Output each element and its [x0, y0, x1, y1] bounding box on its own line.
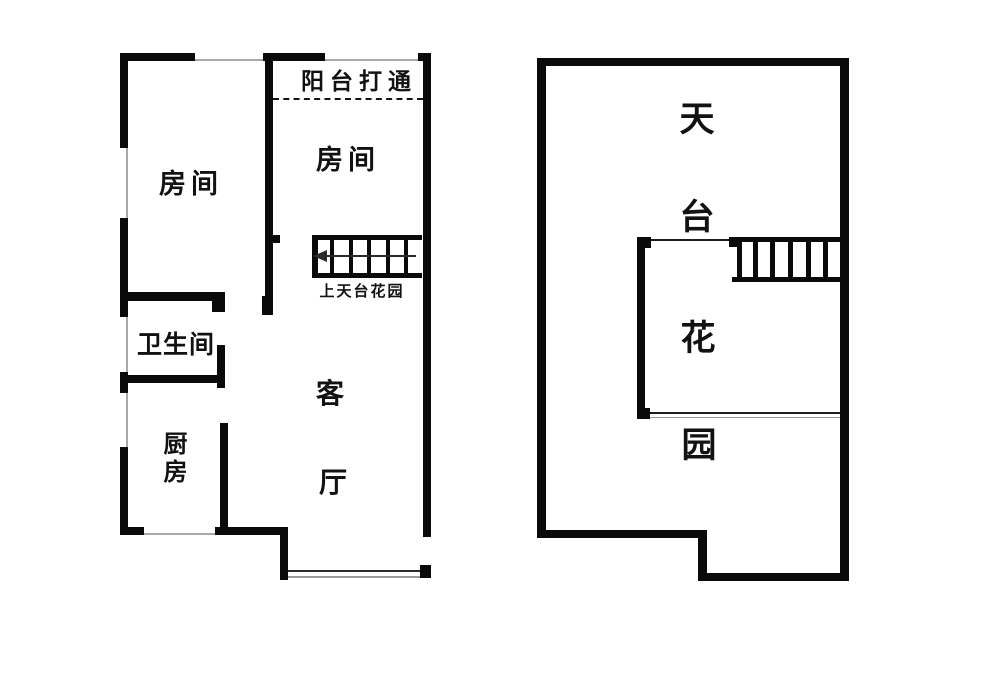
- floor2-inner-left-wall: [637, 248, 645, 417]
- kitchen-label: 厨房: [156, 431, 191, 487]
- floor1-balcony-window: [325, 53, 418, 61]
- floor1-top-window: [195, 53, 263, 61]
- floor1-kitchen-right-wall: [220, 423, 228, 535]
- stair-label: 上天台花园: [306, 280, 418, 301]
- floor2-inner-top-wall: [651, 239, 730, 241]
- floor1-right-wall: [423, 53, 431, 537]
- floor1-right-wall-corner: [420, 565, 431, 578]
- roofgarden-label-char1: 天: [675, 102, 719, 137]
- bedroom-right-label: 房间: [303, 138, 393, 177]
- stair-direction-line: [326, 255, 416, 257]
- balcony-label: 阳台打通: [285, 62, 433, 96]
- floor1-bathroom-bottom-wall: [120, 375, 225, 383]
- floor1-top-wall-segment: [120, 53, 195, 61]
- floor2-inner-wall-endcap: [637, 237, 651, 248]
- livingroom-label-char1: 客: [314, 372, 346, 412]
- floor2-stair-step-line: [770, 237, 775, 282]
- floor2-stair-step-line: [753, 237, 758, 282]
- floor1-divider-stub: [212, 292, 225, 312]
- floor1-middle-wall: [265, 57, 273, 315]
- floor1-left-window: [120, 148, 128, 218]
- bathroom-label: 卫生间: [130, 325, 222, 361]
- roofgarden-label-char2: 台: [675, 200, 719, 235]
- floor1-bottom-wall-segment: [120, 527, 144, 535]
- floor1-middle-wall-stub: [273, 235, 280, 243]
- floor2-top-wall: [537, 58, 849, 66]
- floor1-bedroom-bathroom-divider: [120, 292, 225, 301]
- floor1-middle-wall-endcap: [262, 296, 273, 315]
- roofgarden-label-char4: 园: [677, 428, 721, 463]
- floor2-stair-step-line: [737, 237, 742, 282]
- floor2-right-wall: [840, 58, 849, 581]
- floor1-kitchen-south-window: [144, 527, 215, 535]
- floor1-left-wall-segment: [120, 447, 128, 535]
- floor2-inner-bottom-endcap: [637, 408, 650, 419]
- floor2-stair-step-line: [823, 237, 828, 282]
- floor2-bottom-wall-right: [698, 573, 849, 581]
- stair-direction-arrow-icon: [313, 250, 327, 262]
- roofgarden-label-char3: 花: [676, 321, 720, 356]
- floor1-bathroom-window: [120, 317, 128, 372]
- floor1-left-wall-segment: [120, 218, 128, 317]
- floor2-stair-step-line: [788, 237, 793, 282]
- floor2-inner-bottom-parapet: [650, 412, 840, 418]
- floor1-bottom-step-wall: [280, 527, 288, 580]
- floor2-left-wall: [537, 58, 546, 538]
- livingroom-label-char2: 厅: [317, 461, 349, 501]
- floor1-balcony-dashed-line: [273, 98, 423, 100]
- bedroom-left-label: 房间: [146, 162, 236, 201]
- floor2-stair-step-line: [806, 237, 811, 282]
- floor1-livingroom-south-window: [288, 570, 420, 578]
- floor-plan-canvas: 阳台打通 房间 房间 上天台花园 卫生间 厨房 客 厅 天: [0, 0, 1000, 676]
- floor1-left-wall-segment: [120, 53, 128, 148]
- floor1-kitchen-window: [120, 393, 128, 447]
- floor2-bottom-wall-left: [537, 530, 707, 538]
